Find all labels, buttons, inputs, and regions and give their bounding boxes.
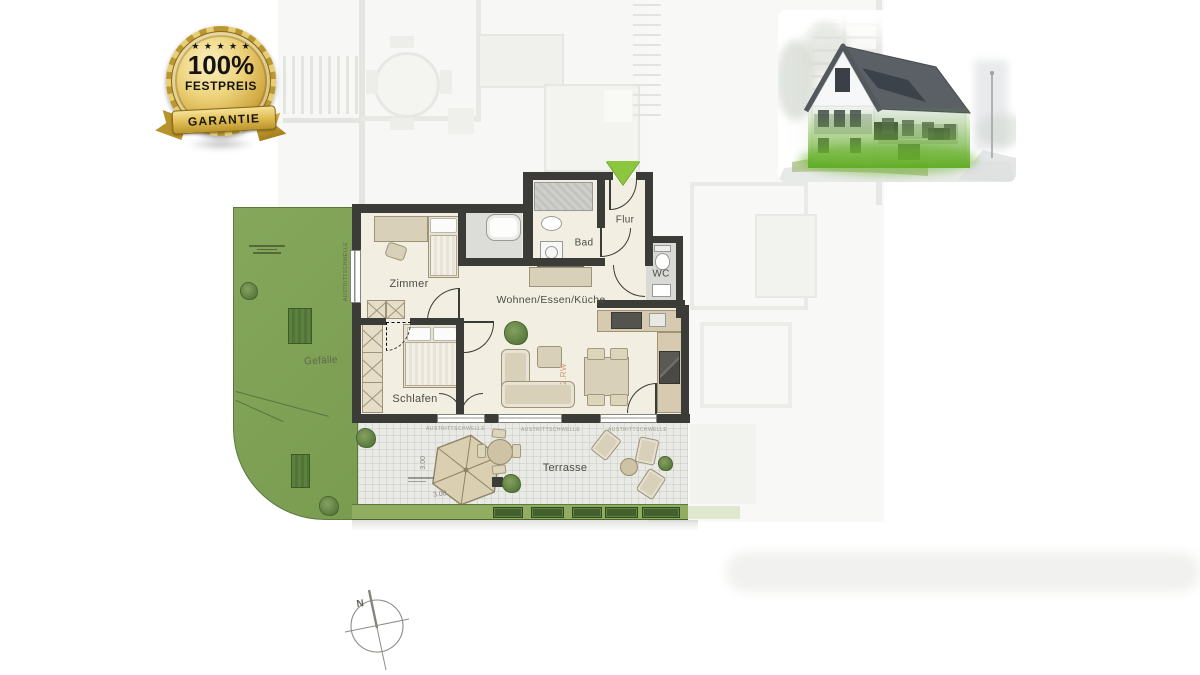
ground-shadow	[352, 520, 698, 531]
festpreis-badge: ★ ★ ★ ★ ★ 100% FESTPREIS GARANTIE	[158, 20, 284, 162]
cooktop	[611, 312, 642, 329]
dining-chair	[587, 348, 605, 360]
garden-planter	[288, 308, 312, 344]
badge-subline: FESTPREIS	[185, 79, 257, 93]
badge-ribbon-text: GARANTIE	[188, 111, 261, 129]
sofa	[501, 381, 575, 408]
escape-route-label: 2.RW	[559, 363, 568, 385]
window	[437, 414, 485, 423]
door-leaf	[600, 228, 602, 257]
desk	[374, 216, 428, 242]
room-label-wohnen: Wohnen/Essen/Küche	[496, 294, 605, 306]
toilet	[655, 253, 670, 270]
bed-mattress	[430, 235, 457, 276]
terrace-chair	[512, 444, 521, 458]
terrace-plant	[502, 474, 521, 493]
background-table	[374, 52, 440, 118]
background-wall	[359, 0, 365, 206]
room-label-bad: Bad	[575, 238, 594, 249]
background-chair	[366, 70, 378, 94]
terrace-area	[358, 420, 688, 507]
terrace-side-table	[620, 458, 638, 476]
background-bed	[755, 214, 817, 298]
terrace-chair	[492, 464, 507, 474]
badge-headline: 100%	[188, 52, 255, 79]
room-label-schlafen: Schlafen	[392, 393, 437, 405]
wall	[645, 172, 653, 266]
wc-sink	[652, 284, 671, 297]
plant	[504, 321, 528, 345]
toilet-tank	[654, 245, 671, 252]
entrance-arrow	[606, 161, 640, 185]
hedge-box	[572, 507, 602, 518]
garden-bush	[240, 282, 258, 300]
background-chair	[390, 36, 414, 48]
wardrobe	[362, 352, 383, 383]
background-table-small	[448, 108, 474, 134]
garden-bush	[319, 496, 339, 516]
threshold-label: AUSTRITTSCHWELLE	[521, 427, 580, 433]
background-balcony-railing	[283, 56, 359, 114]
bed-pillow	[430, 218, 457, 233]
wall	[597, 300, 685, 308]
background-band	[726, 552, 1200, 592]
room-label-flur: Flur	[616, 215, 634, 226]
background-wall	[283, 118, 361, 123]
threshold-label-vertical: AUSTRITTSCHWELLE	[343, 242, 349, 301]
wall	[352, 318, 386, 325]
background-room	[700, 322, 792, 408]
terrace-chair	[477, 444, 486, 458]
door-leaf	[655, 383, 657, 414]
background-hedge	[688, 506, 740, 519]
wall	[352, 204, 533, 213]
terrace-plant	[356, 428, 376, 448]
shower	[534, 182, 593, 211]
bathtub	[486, 214, 521, 241]
bed-mattress	[405, 342, 459, 386]
door-leaf	[463, 321, 494, 323]
door-leaf	[458, 288, 460, 321]
room-label-zimmer: Zimmer	[389, 278, 428, 290]
background-terrace	[690, 424, 756, 504]
building-rendering	[778, 10, 1016, 182]
wardrobe	[362, 382, 383, 413]
hedge-box	[531, 507, 564, 518]
wall	[458, 258, 605, 266]
floorplan-marketing-image: Gefälle AUSTRITTSCHWELLE AUSTRITTSCHWELL…	[0, 0, 1200, 675]
background-sofa	[478, 34, 564, 88]
terrace-table	[487, 439, 513, 465]
dining-table	[584, 357, 629, 396]
wall	[681, 305, 689, 423]
building-illustration	[778, 10, 1016, 182]
background-stairs	[633, 4, 661, 124]
dining-chair	[610, 348, 628, 360]
threshold-label: AUSTRITTSCHWELLE	[608, 427, 667, 433]
wall	[597, 178, 605, 228]
wardrobe	[386, 300, 405, 319]
bathroom-sink	[541, 216, 562, 231]
garden-planter	[291, 454, 310, 488]
wardrobe	[367, 300, 386, 319]
bed-pillow	[407, 327, 431, 341]
dimension-label: 3.00	[433, 490, 447, 498]
wall	[523, 172, 533, 266]
background-chair	[440, 70, 452, 94]
window	[498, 414, 562, 423]
terrace-plant	[658, 456, 673, 471]
hedge-box	[493, 507, 523, 518]
sideboard	[529, 267, 592, 287]
terrace-annotation	[408, 477, 436, 484]
window	[350, 250, 361, 303]
wall	[458, 204, 466, 266]
north-label: N	[356, 598, 365, 610]
window	[600, 414, 657, 423]
dimension-label: 3.00	[420, 456, 427, 470]
wardrobe	[362, 322, 383, 353]
room-label-terrasse: Terrasse	[543, 462, 588, 474]
background-chair	[390, 118, 414, 130]
badge-shadow	[186, 138, 256, 150]
room-label-wc: WC	[652, 269, 669, 280]
wall	[352, 204, 361, 423]
kitchen-sink	[649, 313, 666, 327]
dining-chair	[610, 394, 628, 406]
dining-chair	[587, 394, 605, 406]
garden-annotation	[249, 245, 287, 256]
hedge-box	[605, 507, 638, 518]
slope-label: Gefälle	[304, 355, 338, 368]
hedge-box	[642, 507, 680, 518]
bed-pillow	[433, 327, 457, 341]
background-pillow	[604, 90, 632, 122]
oven	[659, 351, 680, 384]
terrace-chair	[492, 428, 507, 438]
north-compass: N	[336, 586, 420, 675]
